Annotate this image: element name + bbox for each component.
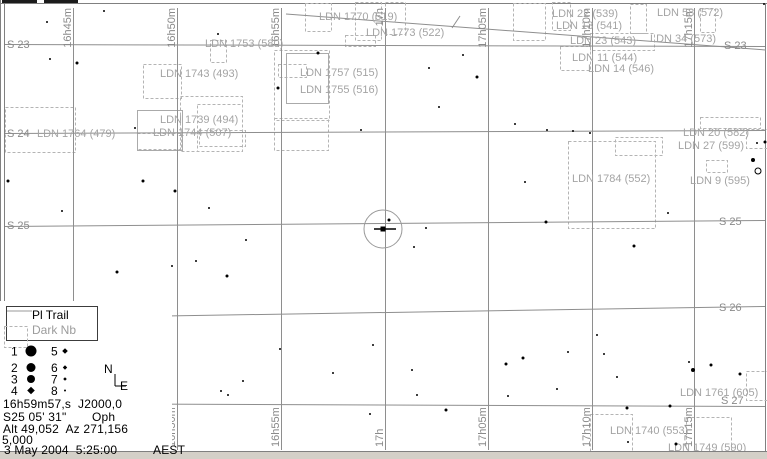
star bbox=[116, 271, 119, 274]
star bbox=[616, 376, 618, 378]
star bbox=[49, 58, 51, 60]
dark-nebula-outline bbox=[569, 142, 656, 229]
star bbox=[360, 129, 362, 131]
dec-label: S 25 bbox=[7, 220, 30, 232]
star bbox=[589, 132, 591, 134]
dark-nebula-outline bbox=[514, 4, 546, 41]
star bbox=[425, 227, 427, 229]
dark-nebula-outline bbox=[707, 161, 728, 173]
dark-nebula-outline bbox=[747, 130, 767, 149]
star bbox=[279, 348, 281, 350]
star bbox=[507, 395, 509, 397]
ra-label-bottom: 17h10m bbox=[581, 407, 593, 447]
star bbox=[596, 334, 598, 336]
star bbox=[220, 390, 222, 392]
dec-label: S 25 bbox=[719, 216, 742, 228]
status-datetime: 3 May 2004 5:25:00 bbox=[4, 443, 117, 457]
star bbox=[388, 219, 391, 222]
star bbox=[103, 10, 105, 12]
star bbox=[7, 180, 10, 183]
star bbox=[171, 265, 173, 267]
star bbox=[369, 413, 371, 415]
star bbox=[227, 394, 229, 396]
ra-label-bottom: 16h55m bbox=[270, 407, 282, 447]
star bbox=[667, 212, 669, 214]
star bbox=[317, 52, 320, 55]
dark-nebula-label: LDN 22 (539) bbox=[552, 8, 618, 20]
dark-nebula-label: LDN 13 (541) bbox=[556, 20, 622, 32]
star bbox=[462, 54, 464, 56]
star bbox=[627, 441, 629, 443]
star bbox=[438, 106, 440, 108]
titlebar-fragment bbox=[2, 0, 37, 3]
star bbox=[416, 394, 418, 396]
dark-nebula-label: LDN 58 (572) bbox=[657, 7, 723, 19]
star bbox=[174, 190, 177, 193]
star bbox=[688, 361, 690, 363]
dark-nebula-label: LDN 27 (599) bbox=[678, 140, 744, 152]
status-ra: 16h59m57,s bbox=[3, 397, 71, 411]
star bbox=[332, 372, 334, 374]
dark-nebula-label: LDN 34 (573) bbox=[650, 33, 716, 45]
deep-sky-circle bbox=[755, 168, 761, 174]
star bbox=[633, 245, 636, 248]
star bbox=[217, 33, 219, 35]
planet-trail-tick bbox=[452, 16, 460, 28]
star bbox=[751, 158, 755, 162]
dark-nebula-label: LDN 1770 (519) bbox=[319, 11, 397, 23]
dark-nebula-label: LDN 1784 (552) bbox=[572, 173, 650, 185]
star bbox=[46, 21, 48, 23]
dark-nebula-label: LDN 1757 (515) bbox=[300, 67, 378, 79]
star bbox=[505, 363, 508, 366]
star bbox=[514, 123, 516, 125]
star bbox=[603, 353, 605, 355]
ra-label-bottom: 17h05m bbox=[477, 407, 489, 447]
star bbox=[445, 409, 448, 412]
star bbox=[134, 127, 136, 129]
compass-east-label: E bbox=[120, 379, 128, 393]
compass-north-label: N bbox=[104, 362, 113, 376]
star bbox=[61, 210, 63, 212]
ra-label-top: 16h45m bbox=[62, 8, 74, 48]
star bbox=[710, 364, 713, 367]
star bbox=[413, 246, 415, 248]
titlebar-fragment bbox=[44, 0, 78, 3]
star bbox=[669, 405, 672, 408]
dark-nebula-label: LDN 14 (546) bbox=[588, 63, 654, 75]
star bbox=[76, 62, 79, 65]
star bbox=[572, 130, 574, 132]
dark-nebula-label: LDN 20 (582) bbox=[683, 127, 749, 139]
dec-label: S 23 bbox=[724, 40, 747, 52]
dark-nebula-label: LDN 1740 (553) bbox=[610, 425, 688, 437]
dark-nebula-label: LDN 1773 (522) bbox=[366, 27, 444, 39]
star bbox=[546, 129, 548, 131]
dec-label: S 26 bbox=[719, 302, 742, 314]
star bbox=[245, 239, 247, 241]
legend-dark-nb-label: Dark Nb bbox=[32, 323, 76, 337]
legend-pl-trail-label: Pl Trail bbox=[32, 308, 69, 322]
dark-nebula-label: LDN 23 (543) bbox=[570, 35, 636, 47]
star bbox=[556, 388, 558, 390]
star bbox=[226, 275, 229, 278]
star bbox=[476, 76, 479, 79]
dark-nebula-label: LDN 1739 (494) bbox=[160, 114, 238, 126]
star bbox=[675, 443, 678, 446]
star bbox=[756, 142, 758, 144]
dark-nebula-label: LDN 1744 (507) bbox=[153, 127, 231, 139]
star bbox=[764, 141, 767, 144]
ra-label-top: 16h50m bbox=[166, 8, 178, 48]
star bbox=[545, 221, 548, 224]
star bbox=[763, 3, 765, 5]
star bbox=[739, 373, 742, 376]
star bbox=[242, 380, 244, 382]
star bbox=[428, 67, 430, 69]
sky-chart-window: S 23S 24S 25S 23S 25S 26S 2716h45m16h50m… bbox=[0, 0, 767, 459]
star bbox=[691, 368, 695, 372]
star bbox=[142, 180, 145, 183]
dec-label: S 24 bbox=[7, 128, 30, 140]
dark-nebula-label: LDN 1753 (580) bbox=[205, 38, 283, 50]
dark-nebula-outline bbox=[631, 5, 647, 34]
dec-label: S 23 bbox=[7, 39, 30, 51]
star bbox=[208, 207, 210, 209]
ra-label-bottom: 17h bbox=[374, 429, 386, 447]
dark-nebula-label: LDN 9 (595) bbox=[690, 175, 750, 187]
star bbox=[522, 357, 525, 360]
star bbox=[195, 260, 197, 262]
status-timezone: AEST bbox=[153, 443, 185, 457]
dark-nebula-label: LDN 1755 (516) bbox=[300, 84, 378, 96]
star bbox=[567, 351, 569, 353]
ra-label-top: 17h05m bbox=[477, 8, 489, 48]
star bbox=[372, 344, 374, 346]
status-epoch: J2000,0 bbox=[78, 397, 122, 411]
dark-nebula-label: LDN 1764 (479) bbox=[37, 128, 115, 140]
planet-marker bbox=[381, 227, 386, 232]
legend-box: Pl Trail Dark Nb bbox=[6, 306, 98, 341]
star bbox=[626, 407, 629, 410]
dark-nebula-label: LDN 1743 (493) bbox=[160, 68, 238, 80]
star bbox=[277, 87, 280, 90]
dark-nebula-label: LDN 1761 (605) bbox=[680, 387, 758, 399]
star bbox=[524, 181, 526, 183]
dark-nebula-outline bbox=[275, 119, 329, 151]
ra-value: 16h59m57,s bbox=[3, 397, 71, 411]
star bbox=[411, 369, 413, 371]
